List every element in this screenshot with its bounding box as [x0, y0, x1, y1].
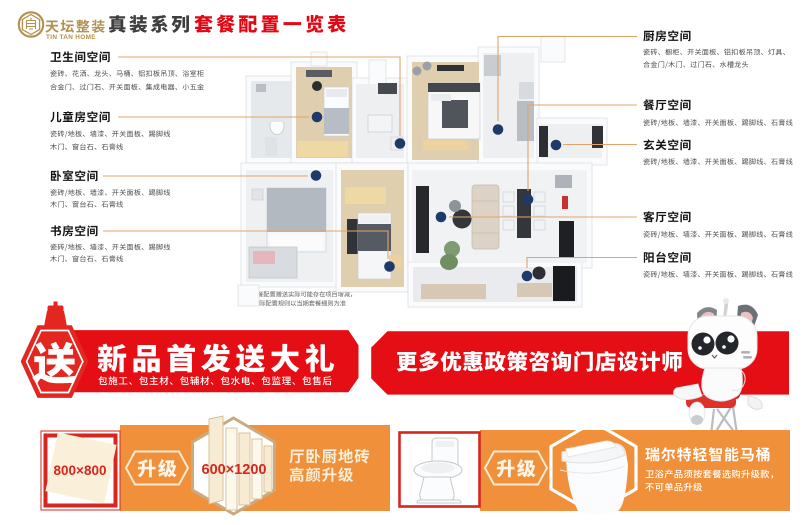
svg-text:TIN TAN HOME: TIN TAN HOME — [46, 34, 96, 41]
svg-text:800×800: 800×800 — [54, 463, 107, 478]
svg-text:600×1200: 600×1200 — [202, 462, 267, 478]
